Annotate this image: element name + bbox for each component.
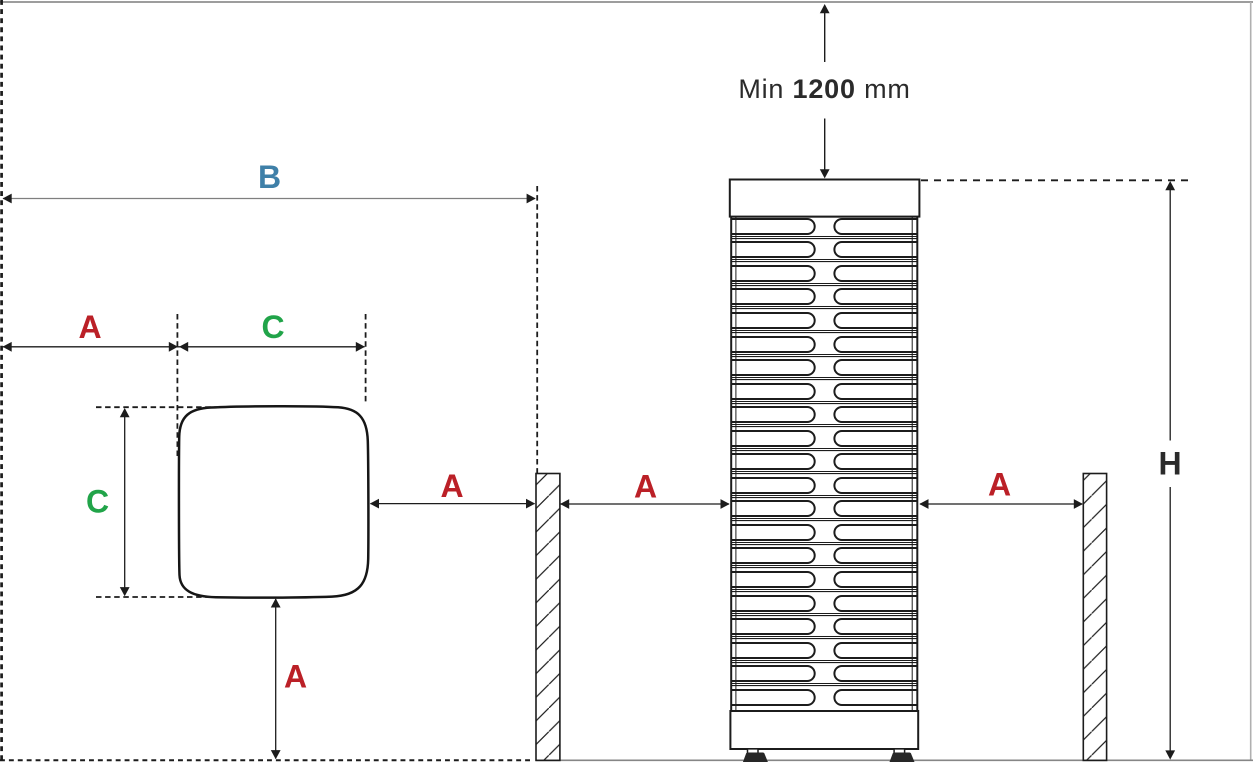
svg-text:A: A — [284, 659, 307, 695]
svg-text:Min 1200 mm: Min 1200 mm — [738, 74, 910, 104]
svg-text:C: C — [86, 484, 109, 520]
svg-text:C: C — [261, 309, 284, 345]
svg-text:H: H — [1158, 446, 1181, 482]
svg-text:B: B — [258, 159, 281, 195]
svg-text:A: A — [440, 468, 463, 504]
svg-text:A: A — [634, 469, 657, 505]
svg-text:A: A — [78, 309, 101, 345]
svg-text:A: A — [988, 467, 1011, 503]
